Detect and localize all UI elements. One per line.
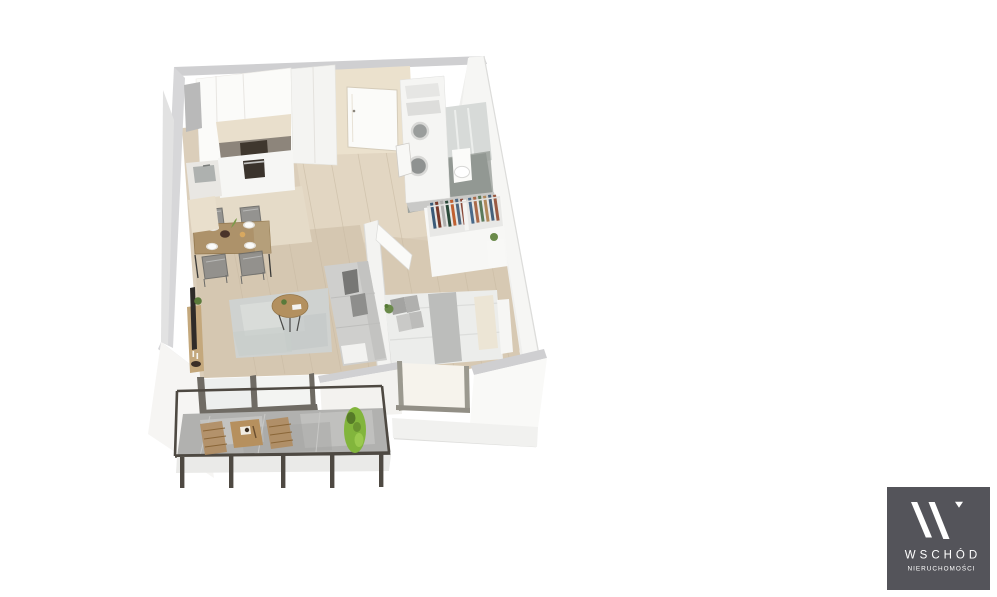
svg-text:WSCHÓD: WSCHÓD (905, 549, 981, 562)
svg-text:NIERUCHOMOŚCI: NIERUCHOMOŚCI (907, 564, 975, 573)
